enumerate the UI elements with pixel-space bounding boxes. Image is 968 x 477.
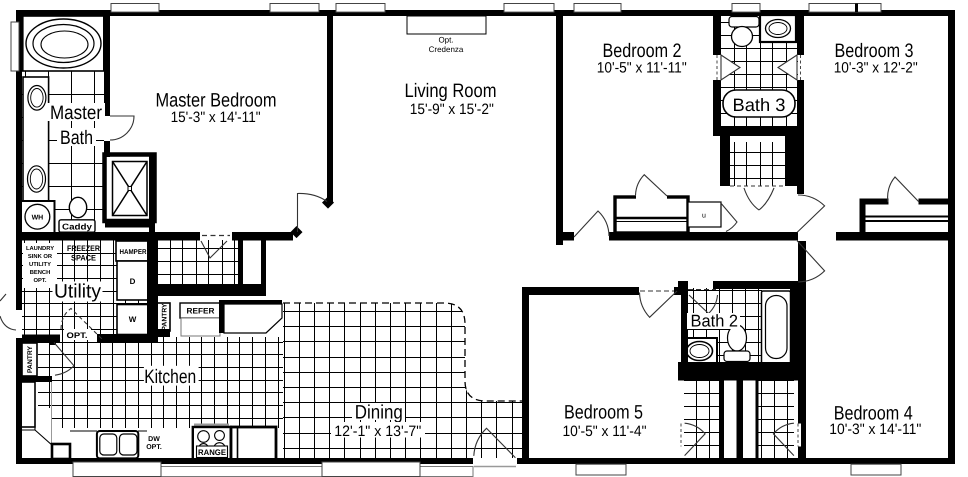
svg-text:Living Room: Living Room <box>405 80 497 102</box>
svg-text:OPT.: OPT. <box>67 331 88 340</box>
svg-text:UTILITY: UTILITY <box>29 262 51 268</box>
svg-text:Credenza: Credenza <box>429 45 464 54</box>
svg-text:Dining: Dining <box>355 402 403 424</box>
svg-text:10'-5" x 11'-11": 10'-5" x 11'-11" <box>597 60 687 77</box>
svg-text:REFER: REFER <box>187 307 215 316</box>
svg-text:Bath 3: Bath 3 <box>733 95 786 115</box>
svg-text:OPT.: OPT. <box>146 444 162 451</box>
svg-text:LAUNDRY: LAUNDRY <box>26 246 54 252</box>
svg-text:10'-5" x 11'-4": 10'-5" x 11'-4" <box>563 423 647 440</box>
svg-text:SINK OR: SINK OR <box>28 253 53 260</box>
svg-text:Master: Master <box>50 102 102 124</box>
svg-text:Bath 2: Bath 2 <box>691 312 739 331</box>
svg-text:Bedroom 5: Bedroom 5 <box>564 402 643 424</box>
svg-text:BENCH: BENCH <box>30 269 51 276</box>
svg-text:15'-9" x 15'-2": 15'-9" x 15'-2" <box>410 101 494 118</box>
svg-text:OPT.: OPT. <box>34 277 47 284</box>
svg-text:Opt.: Opt. <box>438 36 453 45</box>
svg-text:10'-3" x 14'-11": 10'-3" x 14'-11" <box>829 421 921 438</box>
svg-text:15'-3" x 14'-11": 15'-3" x 14'-11" <box>171 109 261 126</box>
svg-text:W: W <box>129 315 137 324</box>
svg-text:RANGE: RANGE <box>198 448 227 457</box>
svg-text:DW: DW <box>148 436 160 443</box>
svg-text:PANTRY: PANTRY <box>27 345 34 373</box>
svg-text:12'-1" x 13'-7": 12'-1" x 13'-7" <box>334 423 421 440</box>
svg-text:u: u <box>702 213 706 220</box>
svg-text:Caddy: Caddy <box>62 222 92 232</box>
svg-text:HAMPER: HAMPER <box>120 249 147 256</box>
svg-text:D: D <box>130 277 136 286</box>
svg-text:PANTRY: PANTRY <box>161 303 168 331</box>
svg-text:Bath: Bath <box>60 127 93 149</box>
svg-text:Kitchen: Kitchen <box>144 366 196 388</box>
svg-text:10'-3" x 12'-2": 10'-3" x 12'-2" <box>834 60 918 77</box>
svg-text:SPACE: SPACE <box>71 254 97 263</box>
svg-text:FREEZER: FREEZER <box>67 244 100 253</box>
svg-text:WH: WH <box>32 215 44 222</box>
svg-text:Utility: Utility <box>54 281 101 303</box>
